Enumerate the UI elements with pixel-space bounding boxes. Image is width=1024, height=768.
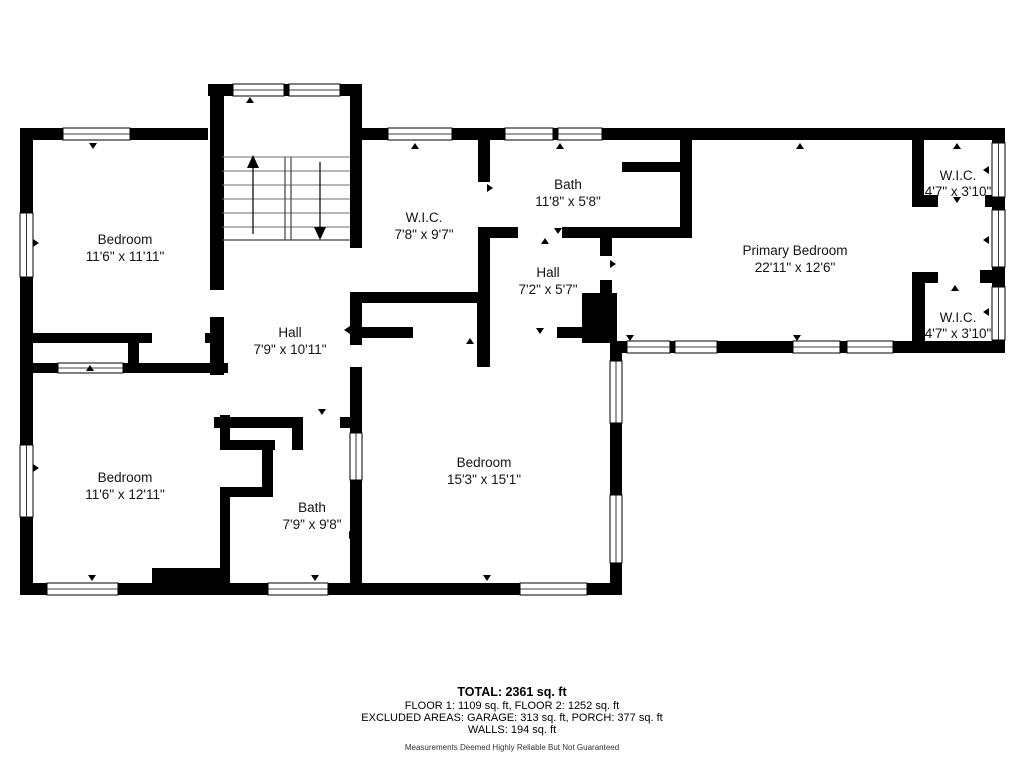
windows <box>20 84 1005 595</box>
room-dims-wic-center: 7'8" x 9'7" <box>394 227 453 242</box>
room-label-wic-center: W.I.C. <box>406 210 443 225</box>
walls <box>20 84 1005 595</box>
floor-plan-page: Bedroom 11'6" x 11'11" W.I.C. 7'8" x 9'7… <box>0 0 1024 768</box>
stairs <box>222 155 350 240</box>
room-dims-wic-top-right: 4'7" x 3'10" <box>925 184 992 199</box>
room-label-wic-bottom-right: W.I.C. <box>940 310 977 325</box>
stairs-up-arrow <box>247 155 259 234</box>
room-dims-bedroom-bl: 11'6" x 12'11" <box>85 487 165 502</box>
solid-block <box>582 293 617 343</box>
floor-plan-canvas: Bedroom 11'6" x 11'11" W.I.C. 7'8" x 9'7… <box>0 0 1024 768</box>
room-dims-wic-bottom-right: 4'7" x 3'10" <box>925 326 992 341</box>
room-dims-hall-small: 7'2" x 5'7" <box>518 282 577 297</box>
summary-walls: WALLS: 194 sq. ft <box>468 724 556 736</box>
room-dims-bedroom-big: 15'3" x 15'1" <box>447 472 521 487</box>
room-label-bath-top: Bath <box>554 177 582 192</box>
room-dims-bath-bottom: 7'9" x 9'8" <box>282 517 341 532</box>
room-dims-bedroom-tl: 11'6" x 11'11" <box>86 249 165 264</box>
room-label-primary-bedroom: Primary Bedroom <box>742 243 847 258</box>
summary-total: TOTAL: 2361 sq. ft <box>457 685 567 699</box>
door-ticks <box>33 97 989 581</box>
room-label-bedroom-big: Bedroom <box>457 455 512 470</box>
room-dims-hall-main: 7'9" x 10'11" <box>253 342 326 357</box>
summary-floors: FLOOR 1: 1109 sq. ft, FLOOR 2: 1252 sq. … <box>405 700 619 712</box>
room-label-hall-main: Hall <box>278 325 301 340</box>
room-label-wic-top-right: W.I.C. <box>940 168 977 183</box>
area-summary: TOTAL: 2361 sq. ft FLOOR 1: 1109 sq. ft,… <box>361 685 662 752</box>
room-label-bedroom-tl: Bedroom <box>98 232 153 247</box>
room-dims-primary-bedroom: 22'11" x 12'6" <box>755 260 836 275</box>
room-label-bedroom-bl: Bedroom <box>98 470 153 485</box>
room-label-hall-small: Hall <box>536 265 559 280</box>
summary-excluded-areas: EXCLUDED AREAS: GARAGE: 313 sq. ft, PORC… <box>361 712 662 724</box>
stairs-down-arrow <box>314 162 326 240</box>
room-dims-bath-top: 11'8" x 5'8" <box>535 194 601 209</box>
room-label-bath-bottom: Bath <box>298 500 326 515</box>
summary-disclaimer: Measurements Deemed Highly Reliable But … <box>405 743 619 752</box>
